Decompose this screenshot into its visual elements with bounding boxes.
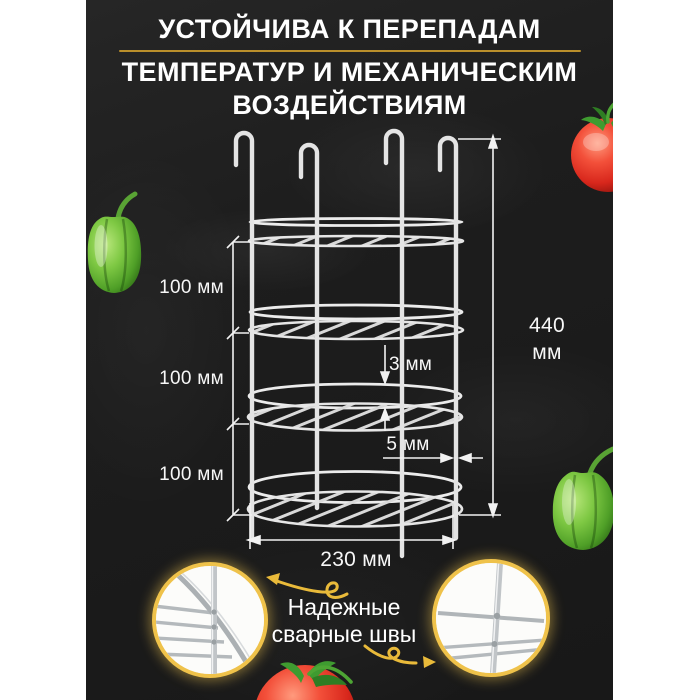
tomato-image-top-right [556, 100, 613, 200]
dimension-label-spacing-1: 100 мм [136, 277, 224, 299]
weld-callout-line-2: сварные швы [260, 621, 428, 648]
chalkboard-panel: УСТОЙЧИВА К ПЕРЕПАДАМ ТЕМПЕРАТУР И МЕХАН… [86, 0, 613, 700]
tier-1 [249, 219, 463, 247]
dimension-label-height: 440 мм [520, 312, 574, 366]
dimension-label-diameter: 230 мм [310, 548, 402, 572]
product-banner: УСТОЙЧИВА К ПЕРЕПАДАМ ТЕМПЕРАТУР И МЕХАН… [0, 0, 700, 700]
dimension-label-wire: 3 мм [389, 354, 432, 376]
weld-detail-circle-right [432, 559, 550, 677]
weld-photo-right [436, 563, 546, 673]
weld-callout: Надежные сварные швы [260, 594, 428, 648]
dimension-label-spacing-2: 100 мм [136, 368, 224, 390]
pepper-image-left [86, 180, 144, 298]
dimension-label-spacing-3: 100 мм [136, 464, 224, 486]
dimension-label-rod: 5 мм [380, 434, 436, 456]
tier-2 [249, 305, 463, 339]
curly-arrow-right-icon [365, 646, 436, 668]
tier-3 [248, 384, 462, 431]
hook-rod-1 [236, 133, 252, 540]
tier-4 [248, 472, 462, 527]
tomato-image-bottom [246, 654, 366, 700]
weld-callout-line-1: Надежные [260, 594, 428, 621]
pepper-image-right [550, 440, 613, 550]
